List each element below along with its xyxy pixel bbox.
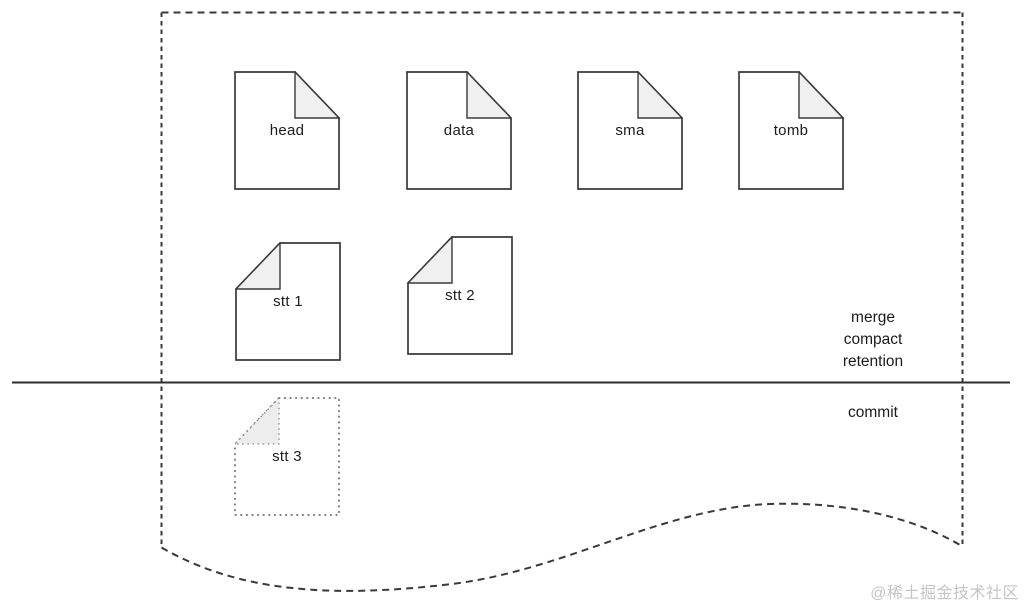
file-tomb: tomb — [738, 71, 844, 190]
file-data: data — [406, 71, 512, 190]
file-label: stt 2 — [407, 287, 513, 304]
file-stt-1: stt 1 — [235, 242, 341, 361]
annotation-compact: compact — [810, 329, 936, 351]
file-label: sma — [577, 122, 683, 139]
file-stt-3: stt 3 — [234, 397, 340, 516]
diagram-canvas: head data sma tomb stt 1 — [0, 0, 1024, 606]
file-label: stt 1 — [235, 293, 341, 310]
watermark-text: @稀土掘金技术社区 — [870, 579, 1019, 603]
file-label: data — [406, 122, 512, 139]
file-stt-2: stt 2 — [407, 236, 513, 355]
annotation-merge: merge — [810, 307, 936, 329]
annotation-retention: retention — [810, 351, 936, 373]
above-line-annotations: merge compact retention — [810, 307, 936, 373]
dashed-border-bottom-wave — [162, 504, 963, 591]
annotation-commit: commit — [810, 404, 936, 422]
file-sma: sma — [577, 71, 683, 190]
file-label: tomb — [738, 122, 844, 139]
file-label: head — [234, 122, 340, 139]
file-head: head — [234, 71, 340, 190]
file-label: stt 3 — [234, 448, 340, 465]
